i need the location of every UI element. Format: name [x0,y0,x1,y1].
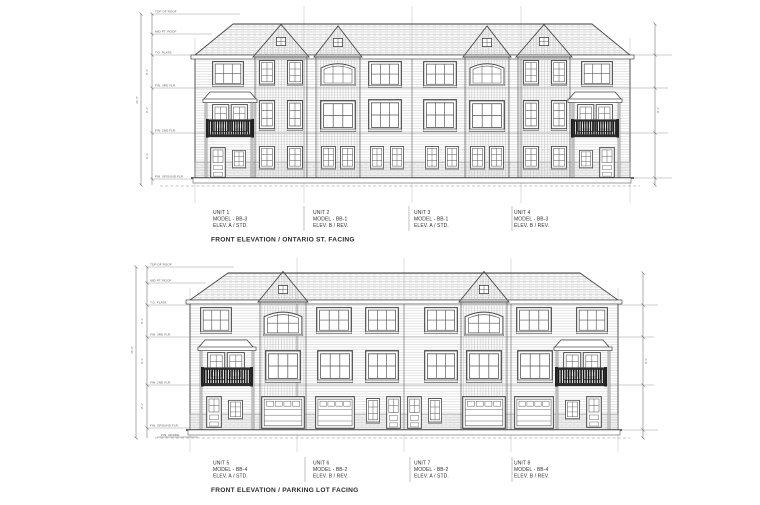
porch-fascia [568,99,622,103]
unit-elev: ELEV. A / STD. [213,223,248,229]
window [551,61,567,86]
window [445,146,459,169]
entry-door [207,397,222,428]
window [424,308,458,334]
arched-window [469,64,505,86]
foundation [193,178,631,183]
balcony-railing [206,119,254,138]
level-label: MID PT. ROOF [150,279,171,283]
level-label: T.O. PLATE [155,51,172,55]
unit-elev: ELEV. B / REV. [313,474,348,480]
window [228,400,243,419]
window [316,308,352,334]
unit-name: UNIT 5 [213,461,229,467]
window [370,146,384,169]
window [551,146,567,169]
entry-door [408,397,422,429]
window [489,146,504,169]
window [523,101,539,131]
dim-value: 9'-1" [140,403,144,409]
garage-door [316,397,355,429]
window [365,351,399,383]
porch-post [572,103,574,179]
level-label: FIN. 3RD FLR. [150,333,171,337]
attic-window [539,37,548,45]
window [287,101,303,131]
level-label: FIN. GROUND FLR. [150,424,179,428]
unit-name: UNIT 4 [514,210,530,216]
level-label: FIN. 3RD FLR. [155,84,176,88]
dim-value: 8'-1" [145,69,149,75]
balcony-railing [571,119,619,138]
garage-door [262,397,305,429]
window [523,61,539,86]
window [212,62,244,87]
window [423,100,457,132]
porch-post [252,351,254,431]
window [317,351,353,383]
level-label: MID PT. ROOF [155,30,176,34]
attic-window [479,285,488,293]
attic-window [482,38,491,46]
garage-door [463,397,506,429]
window [470,146,485,169]
entry-door [387,397,401,429]
dim-value-overall: 31'-6" [130,346,134,354]
foundation [188,430,620,435]
window [579,150,593,168]
window [368,62,402,88]
balcony-railing [555,367,607,387]
window [516,308,552,334]
attic-window [276,37,285,45]
attic-window [278,285,287,293]
window [428,399,442,424]
unit-elev: ELEV. B / REV. [514,474,549,480]
level-label: FIN. GROUND FLR. [155,175,184,179]
window [340,146,355,169]
unit-model: MODEL - BB-2 [414,467,448,473]
window [576,308,608,334]
porch-post [200,351,202,431]
dim-value: 8'-1" [140,318,144,324]
unit-elev: ELEV. A / STD. [213,474,248,480]
level-label: TOP OF ROOF [155,10,177,14]
unit-elev: ELEV. A / STD. [414,474,449,480]
dim-value: 9'-1" [656,107,660,113]
dim-value: 9'-1" [145,107,149,113]
window [423,62,457,88]
porch-post [251,103,253,179]
window [551,101,567,131]
entry-door [587,397,602,428]
unit-name: UNIT 8 [514,461,530,467]
porch-post [205,103,207,179]
elevation-ontario: TOP OF ROOF MID PT. ROOF T.O. PLATE FIN.… [135,6,672,244]
dimension-lines-top-right [654,23,657,187]
porch-post [618,103,620,179]
window [259,146,275,169]
window [390,146,404,169]
dim-value: 9'-1" [145,153,149,159]
window [523,146,539,169]
unit-elev: ELEV. B / REV. [313,223,348,229]
arched-window [464,312,504,336]
unit-model: MODEL - BB-3 [514,217,548,223]
window [320,101,356,132]
window [287,61,303,86]
porch-fascia [554,347,612,351]
dimension-lines-bottom-left [135,266,149,440]
level-label: FIN. 2ND FLR. [150,381,171,385]
elevation-title-parking: FRONT ELEVATION / PARKING LOT FACING [211,487,358,494]
window [259,61,275,86]
porch-fascia [198,347,256,351]
arched-window [320,64,356,86]
window [366,399,380,424]
blueprint-sheet: TOP OF ROOF MID PT. ROOF T.O. PLATE FIN.… [0,0,760,505]
unit-elev: ELEV. A / STD. [414,223,449,229]
dim-value: 9'-1" [644,358,648,364]
elevation-parking: TOP OF ROOF MID PT. ROOF T.O. PLATE FIN.… [130,258,658,494]
window [565,400,580,419]
attic-window [333,38,342,46]
porch-post [556,351,558,431]
unit-labels-parking: UNIT 5 MODEL - BB-4 ELEV. A / STD. UNIT … [213,457,549,482]
dimension-lines-bottom-right [642,272,645,440]
level-label: FIN. 2ND FLR. [155,129,176,133]
level-label: TOP OF ROOF [150,263,172,267]
unit-name: UNIT 1 [213,210,229,216]
unit-model: MODEL - BB-4 [213,467,247,473]
window [368,100,402,132]
entry-door [211,148,226,178]
window [200,308,232,334]
grade-label: FIN. GRADE [161,433,179,437]
dimension-lines-top-left [140,13,154,187]
unit-model: MODEL - BB-4 [514,467,548,473]
unit-model: MODEL - BB-1 [313,217,347,223]
eave-fascia [186,300,622,304]
window [287,146,303,169]
window [265,351,301,383]
elevation-title-ontario: FRONT ELEVATION / ONTARIO ST. FACING [211,237,355,244]
arched-window [263,312,303,336]
window [259,101,275,131]
unit-labels-ontario: UNIT 1 MODEL - BB-3 ELEV. A / STD. UNIT … [213,206,549,231]
window [469,101,505,132]
unit-model: MODEL - BB-1 [414,217,448,223]
window [466,351,502,383]
unit-elev: ELEV. B / REV. [514,223,549,229]
unit-name: UNIT 7 [414,461,430,467]
unit-name: UNIT 6 [313,461,329,467]
level-label: T.O. PLATE [150,301,167,305]
dim-value-overall: 31'-6" [135,96,139,104]
window [424,351,458,383]
unit-name: UNIT 2 [313,210,329,216]
main-roof [190,273,618,300]
window [232,150,246,168]
window [517,351,553,383]
unit-model: MODEL - BB-2 [313,467,347,473]
window [581,62,613,87]
unit-name: UNIT 3 [414,210,430,216]
porch-post [608,351,610,431]
dim-value: 9'-1" [140,358,144,364]
window [425,146,439,169]
unit-model: MODEL - BB-3 [213,217,247,223]
entry-door [600,148,615,178]
garage-door [515,397,554,429]
window [365,308,399,334]
elevation-drawing-canvas: TOP OF ROOF MID PT. ROOF T.O. PLATE FIN.… [0,0,760,505]
porch-fascia [203,99,257,103]
balcony-railing [201,367,253,387]
window [321,146,336,169]
